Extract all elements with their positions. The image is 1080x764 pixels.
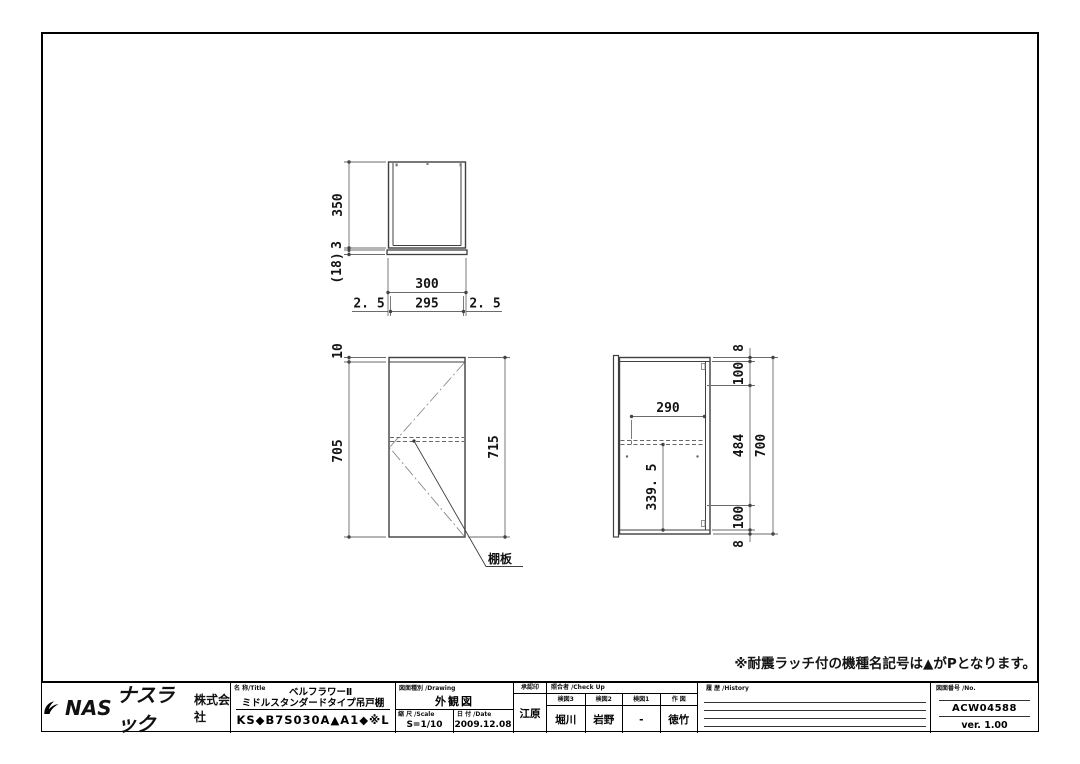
dim-484: 484: [732, 434, 747, 458]
number-label: 図面番号 /No.: [936, 685, 976, 693]
history-label: 履 歴 /History: [706, 685, 749, 693]
check1-label: 検図1: [622, 694, 660, 705]
dim-3: 3: [330, 241, 345, 249]
drawing-type-value: 外観図: [396, 693, 513, 709]
shelf-label: 棚板: [488, 551, 513, 566]
logo-nas-text: NAS: [65, 696, 112, 720]
logo-suffix-text: 株式会社: [194, 691, 230, 725]
check-group-cell: 照合者 /Check Up 検図3 検図2 検図1 作 図 堀川 岩野 - 徳竹: [546, 683, 697, 733]
draw-by-value: 徳竹: [660, 706, 698, 733]
nas-logo-icon: [42, 697, 60, 719]
seismic-latch-note: ※耐震ラッチ付の機種名記号は▲がPとなります。: [734, 655, 1036, 672]
check3-value: 堀川: [547, 706, 585, 733]
approval-value: 江原: [514, 694, 546, 733]
check-subheader-row: 検図3 検図2 検図1 作 図: [547, 694, 697, 706]
number-rule: [939, 700, 1030, 701]
dim-339-5: 339. 5: [645, 464, 660, 511]
dim-2-5-right: 2. 5: [469, 297, 500, 312]
side-view: [614, 356, 711, 538]
dim-10: 10: [331, 343, 346, 359]
check2-value: 岩野: [585, 706, 623, 733]
number-rule: [939, 716, 1030, 717]
drawing-number-cell: 図面番号 /No. ACW04588 ver. 1.00: [930, 683, 1038, 733]
approval-cell: 承認印 江原: [513, 683, 546, 733]
dim-18: (18): [330, 252, 345, 283]
history-cell: 履 歴 /History: [697, 683, 930, 733]
hinge-mark: [460, 164, 462, 167]
history-rule: [704, 702, 926, 703]
product-name-line2: ミドルスタンダードタイプ吊戸棚: [231, 695, 395, 709]
logo-cell: NASナスラック株式会社: [42, 683, 230, 733]
date-label: 日 付 /Date: [457, 711, 491, 719]
drawing-cell: 図面種別 /Drawing 外観図 縮 尺 /Scale S=1/10 日 付 …: [395, 683, 513, 733]
drawing-divider: [396, 709, 513, 710]
mount-detail: [702, 521, 706, 527]
dim-700: 700: [754, 434, 769, 458]
title-block: NASナスラック株式会社 名 称/Title ベルフラワーⅡ ミドルスタンダード…: [42, 681, 1038, 731]
mount-detail: [702, 364, 706, 370]
check-value-row: 堀川 岩野 - 徳竹: [547, 706, 697, 733]
history-rule: [704, 726, 926, 727]
check1-value: -: [622, 706, 660, 733]
dim-8-bottom: 8: [732, 540, 747, 548]
dim-715: 715: [487, 435, 502, 458]
dim-300: 300: [415, 277, 439, 292]
dim-705: 705: [331, 439, 346, 462]
dim-100-top: 100: [732, 362, 747, 386]
dim-290: 290: [656, 401, 680, 416]
scale-value: S=1/10: [396, 720, 453, 730]
dim-350: 350: [331, 193, 346, 217]
check3-label: 検図3: [547, 694, 585, 705]
version-value: ver. 1.00: [931, 720, 1038, 731]
door-panel: [614, 356, 619, 538]
check2-label: 検図2: [585, 694, 623, 705]
dim-295: 295: [415, 297, 438, 312]
front-view: [389, 358, 523, 567]
scale-label: 縮 尺 /Scale: [398, 711, 434, 719]
sheet-frame: [42, 33, 1038, 731]
model-number: KS◆B7S030A▲A1◆※L: [231, 713, 395, 727]
draw-by-label: 作 図: [660, 694, 698, 705]
title-cell: 名 称/Title ベルフラワーⅡ ミドルスタンダードタイプ吊戸棚 KS◆B7S…: [230, 683, 395, 733]
dim-100-bottom: 100: [732, 506, 747, 530]
logo-kana-text: ナスラック: [117, 679, 188, 737]
door-swing-line: [390, 448, 465, 537]
dim-8-top: 8: [732, 344, 747, 352]
hinge-mark: [427, 163, 429, 165]
history-rule: [704, 718, 926, 719]
hinge-mark: [396, 164, 398, 167]
drawing-canvas: 350 3 (18) 300 2. 5 295 2. 5 棚板: [0, 0, 1080, 764]
drawing-number-value: ACW04588: [931, 703, 1038, 714]
drawing-label: 図面種別 /Drawing: [399, 685, 455, 693]
front-view-dimensions: [344, 356, 510, 539]
dim-2-5-left: 2. 5: [353, 297, 384, 312]
drawing-sheet: 350 3 (18) 300 2. 5 295 2. 5 棚板: [0, 0, 1080, 764]
history-rule: [704, 710, 926, 711]
date-value: 2009.12.08: [453, 720, 513, 730]
approval-label: 承認印: [521, 684, 539, 692]
door-swing-line: [390, 363, 465, 448]
title-label: 名 称/Title: [234, 685, 265, 693]
shelf-leader-line: [414, 441, 523, 567]
top-view-dimensions: [344, 160, 502, 316]
shelf-pin-mark: [626, 455, 628, 457]
shelf-pin-mark: [696, 455, 698, 457]
top-view: [387, 162, 467, 255]
check-label: 照合者 /Check Up: [551, 684, 605, 692]
title-divider: [236, 709, 390, 710]
